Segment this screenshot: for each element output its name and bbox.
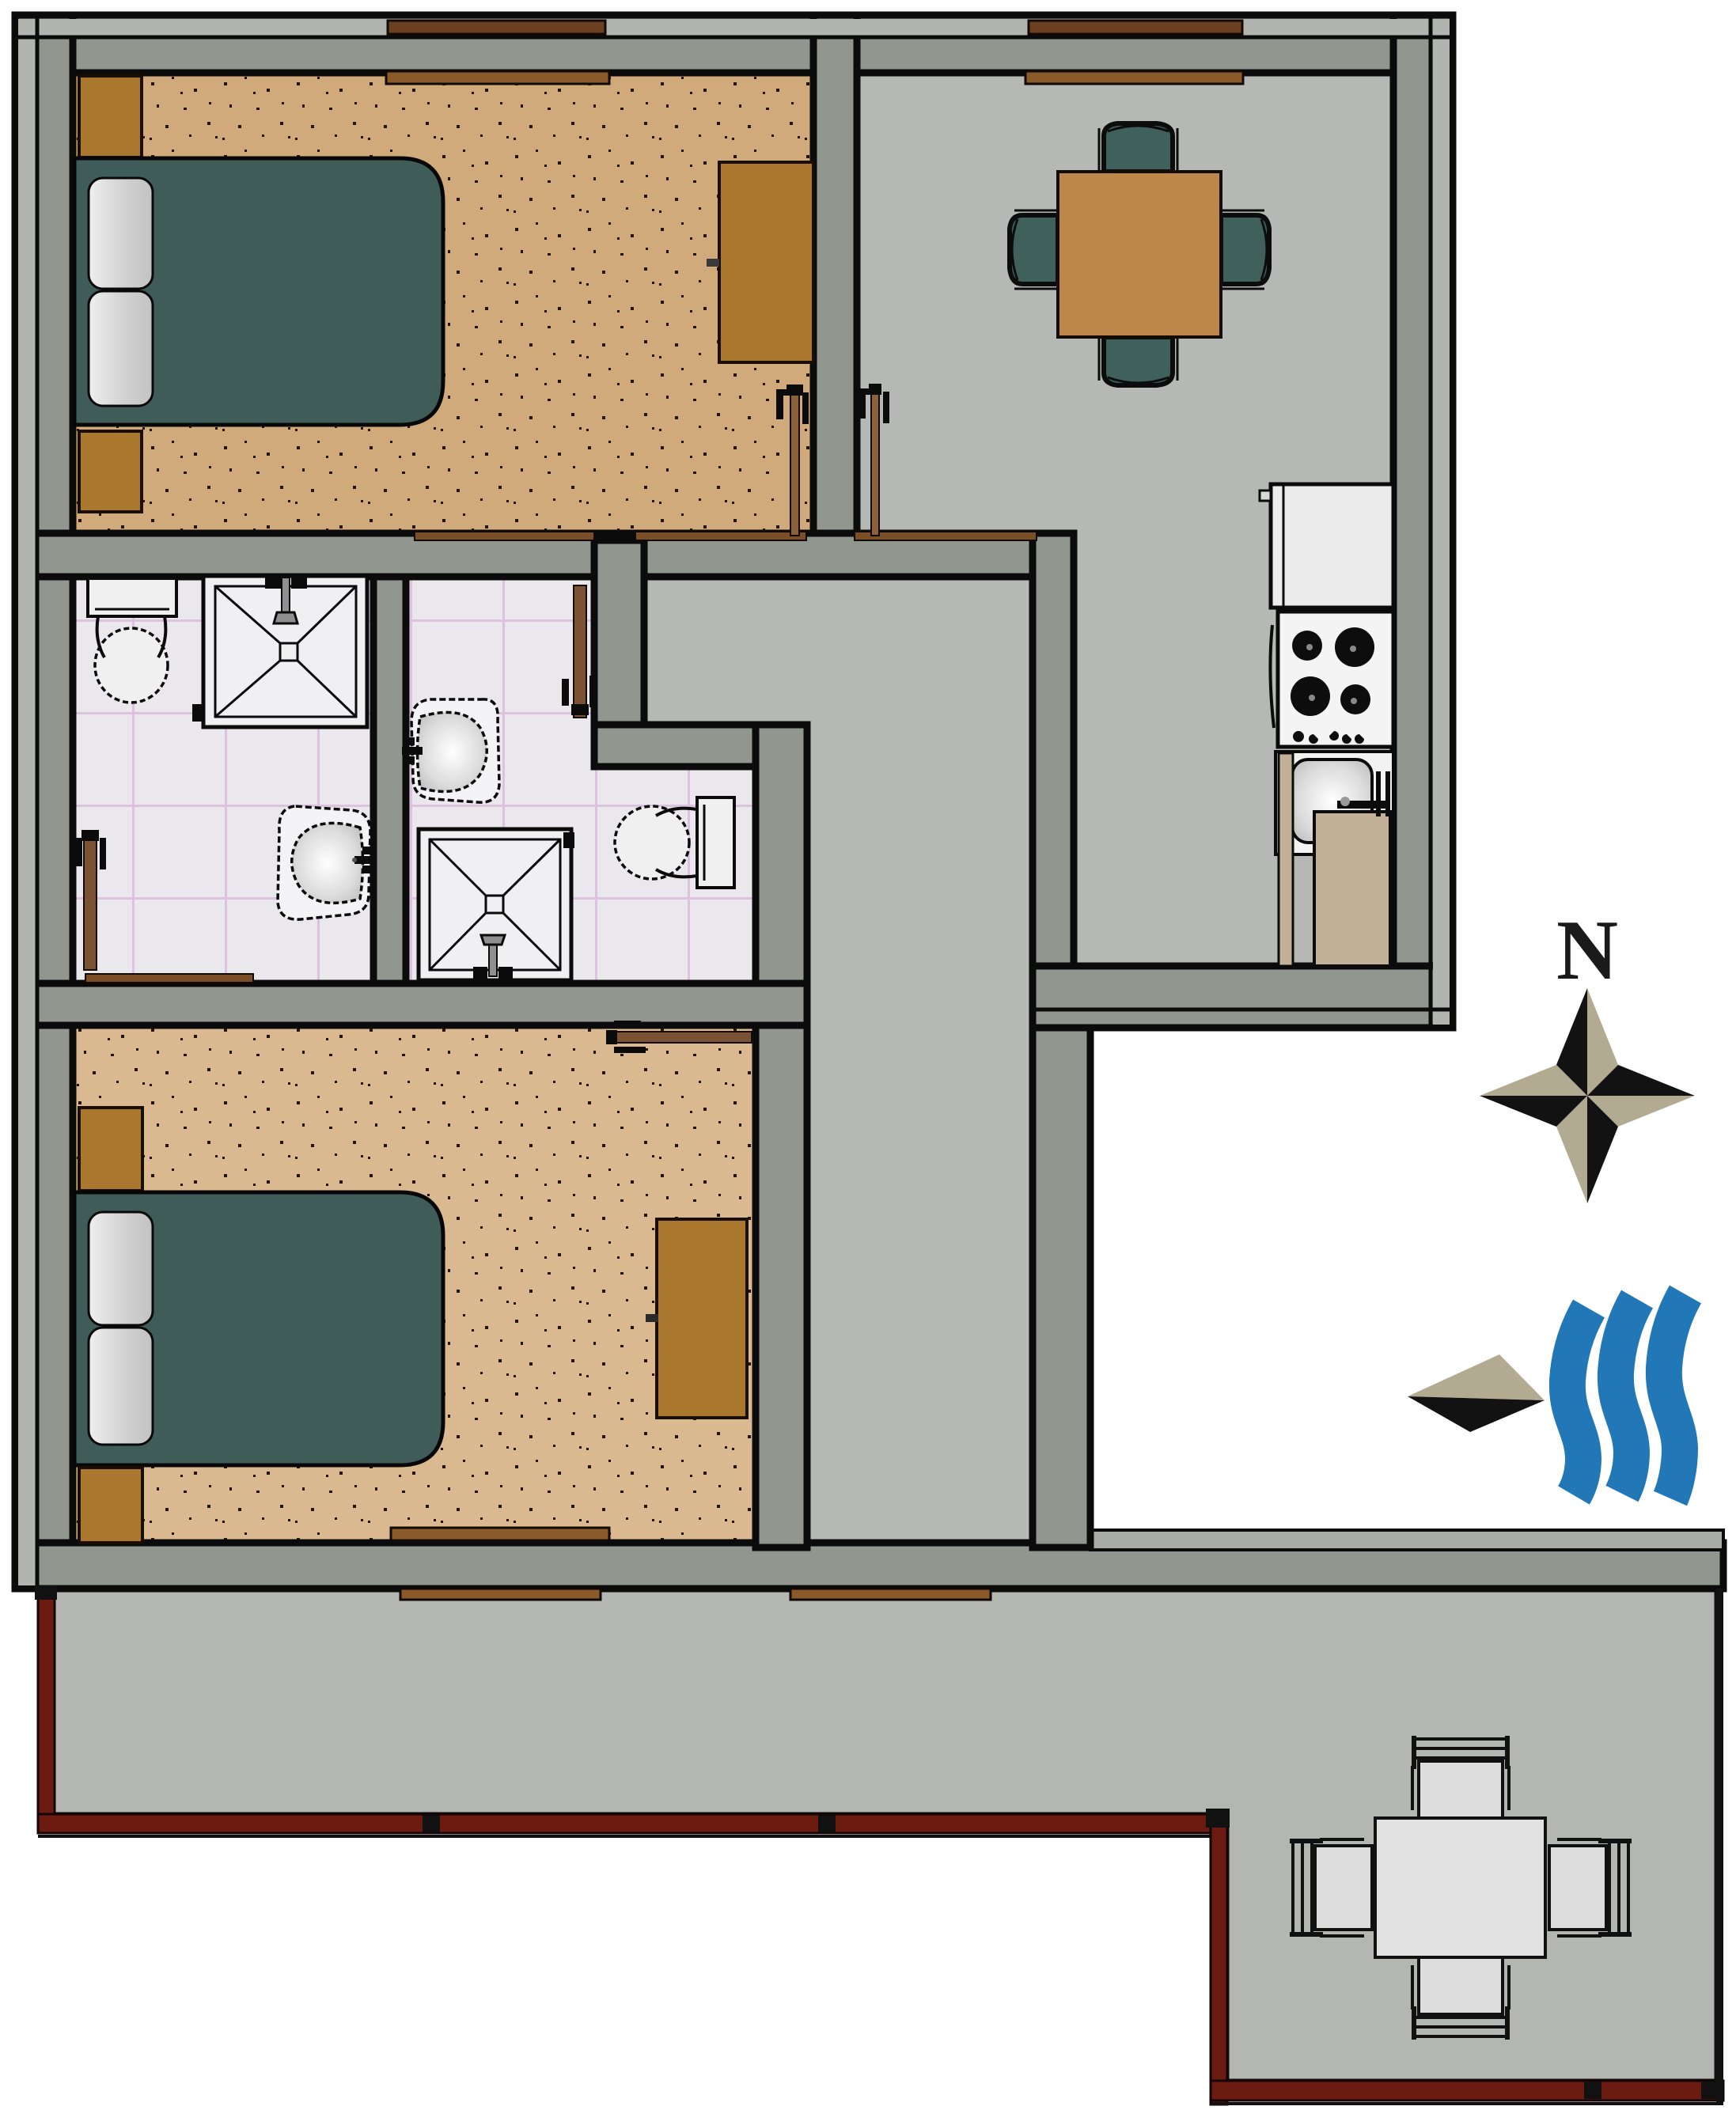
svg-text:N: N [1556,903,1618,998]
